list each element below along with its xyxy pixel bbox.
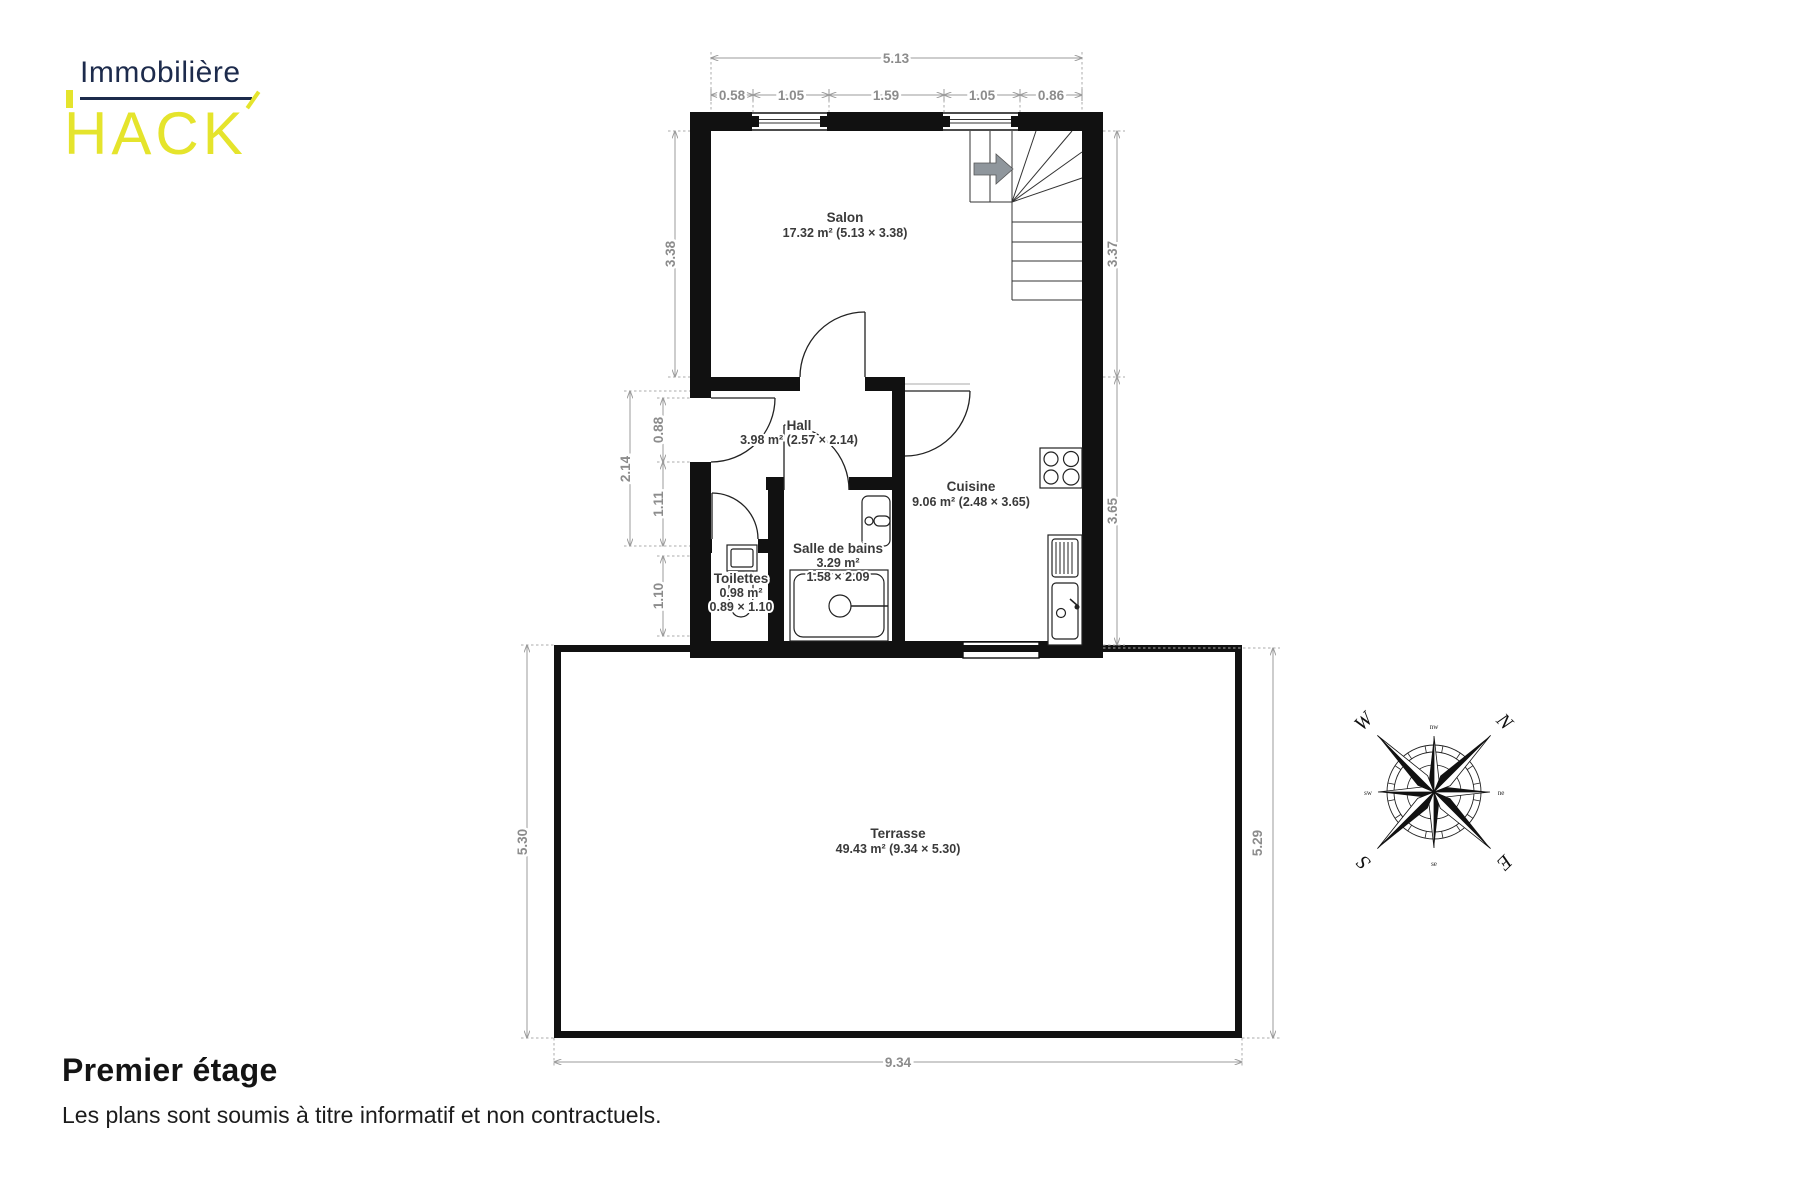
page-title: Premier étage	[62, 1052, 662, 1089]
floor-plan: 5.13 0.58 1.05 1.59 1.05 0.86 3.38 2.14	[0, 0, 1799, 1200]
svg-text:Toilettes: Toilettes	[714, 571, 769, 586]
room-label-cuisine: Cuisine 9.06 m² (2.48 × 3.65)	[912, 479, 1030, 509]
room-label-salon: Salon 17.32 m² (5.13 × 3.38)	[783, 210, 908, 240]
svg-text:9.34: 9.34	[885, 1055, 912, 1070]
svg-text:5.29: 5.29	[1250, 830, 1265, 856]
svg-text:5.13: 5.13	[883, 51, 910, 66]
disclaimer-text: Les plans sont soumis à titre informatif…	[62, 1102, 662, 1129]
window-salon-left	[752, 112, 827, 131]
room-label-toilettes: Toilettes 0.98 m² 0.89 × 1.10	[710, 571, 773, 614]
svg-text:1.58 × 2.09: 1.58 × 2.09	[807, 570, 870, 584]
door-toilettes	[712, 493, 758, 539]
svg-text:0.86: 0.86	[1038, 88, 1065, 103]
svg-text:49.43 m² (9.34 × 5.30): 49.43 m² (9.34 × 5.30)	[836, 842, 961, 856]
plan-caption: Premier étage Les plans sont soumis à ti…	[62, 1052, 662, 1129]
svg-text:9.06 m² (2.48 × 3.65): 9.06 m² (2.48 × 3.65)	[912, 495, 1030, 509]
svg-text:sw: sw	[1364, 789, 1373, 797]
svg-text:3.65: 3.65	[1105, 497, 1120, 524]
dim-top-segments: 0.58 1.05 1.59 1.05 0.86	[711, 88, 1082, 112]
room-label-hall: Hall 3.98 m² (2.57 × 2.14)	[740, 418, 858, 447]
svg-text:ne: ne	[1498, 789, 1505, 797]
svg-text:3.29 m²: 3.29 m²	[816, 556, 859, 570]
svg-text:Hall: Hall	[787, 418, 812, 433]
svg-text:5.30: 5.30	[515, 829, 530, 855]
svg-text:3.38: 3.38	[663, 240, 678, 267]
svg-text:S: S	[1352, 851, 1375, 874]
kitchen-sink-icon	[1048, 535, 1082, 645]
svg-text:0.98 m²: 0.98 m²	[719, 586, 762, 600]
compass-rose-icon: N E S W nw ne se sw	[1350, 706, 1518, 874]
svg-text:3.98 m² (2.57 × 2.14): 3.98 m² (2.57 × 2.14)	[740, 433, 858, 447]
dim-left-column: 3.38 2.14 0.88 1.11 1.10	[618, 131, 690, 636]
svg-text:Salle de bains: Salle de bains	[793, 541, 883, 556]
dim-terrace: 5.30 5.29 9.34	[515, 645, 1280, 1070]
door-kitchen	[905, 384, 970, 456]
svg-text:1.10: 1.10	[651, 583, 666, 609]
svg-text:N: N	[1491, 709, 1518, 736]
svg-text:0.88: 0.88	[651, 416, 666, 443]
svg-text:1.05: 1.05	[969, 88, 996, 103]
svg-text:nw: nw	[1430, 723, 1440, 731]
svg-text:Terrasse: Terrasse	[870, 826, 926, 841]
svg-text:2.14: 2.14	[618, 455, 633, 482]
door-salon-hall	[800, 312, 865, 377]
dim-right-column: 3.37 3.65	[1103, 131, 1125, 645]
window-salon-right	[943, 112, 1018, 131]
svg-text:0.89 × 1.10: 0.89 × 1.10	[710, 600, 773, 614]
svg-text:1.05: 1.05	[778, 88, 805, 103]
stair-direction-arrow-icon	[974, 154, 1013, 184]
svg-text:se: se	[1431, 860, 1437, 868]
svg-text:17.32 m² (5.13 × 3.38): 17.32 m² (5.13 × 3.38)	[783, 226, 908, 240]
svg-text:Salon: Salon	[827, 210, 864, 225]
svg-text:3.37: 3.37	[1105, 241, 1120, 267]
svg-text:E: E	[1492, 849, 1517, 874]
svg-text:W: W	[1350, 706, 1379, 735]
svg-text:0.58: 0.58	[719, 88, 746, 103]
svg-text:Cuisine: Cuisine	[947, 479, 996, 494]
staircase	[970, 131, 1082, 300]
svg-text:1.59: 1.59	[873, 88, 899, 103]
stove-icon	[1040, 448, 1082, 488]
bathroom-sink-icon	[862, 496, 890, 546]
door-entry	[711, 398, 775, 462]
room-label-terrasse: Terrasse 49.43 m² (9.34 × 5.30)	[836, 826, 961, 856]
svg-text:1.11: 1.11	[651, 491, 666, 517]
